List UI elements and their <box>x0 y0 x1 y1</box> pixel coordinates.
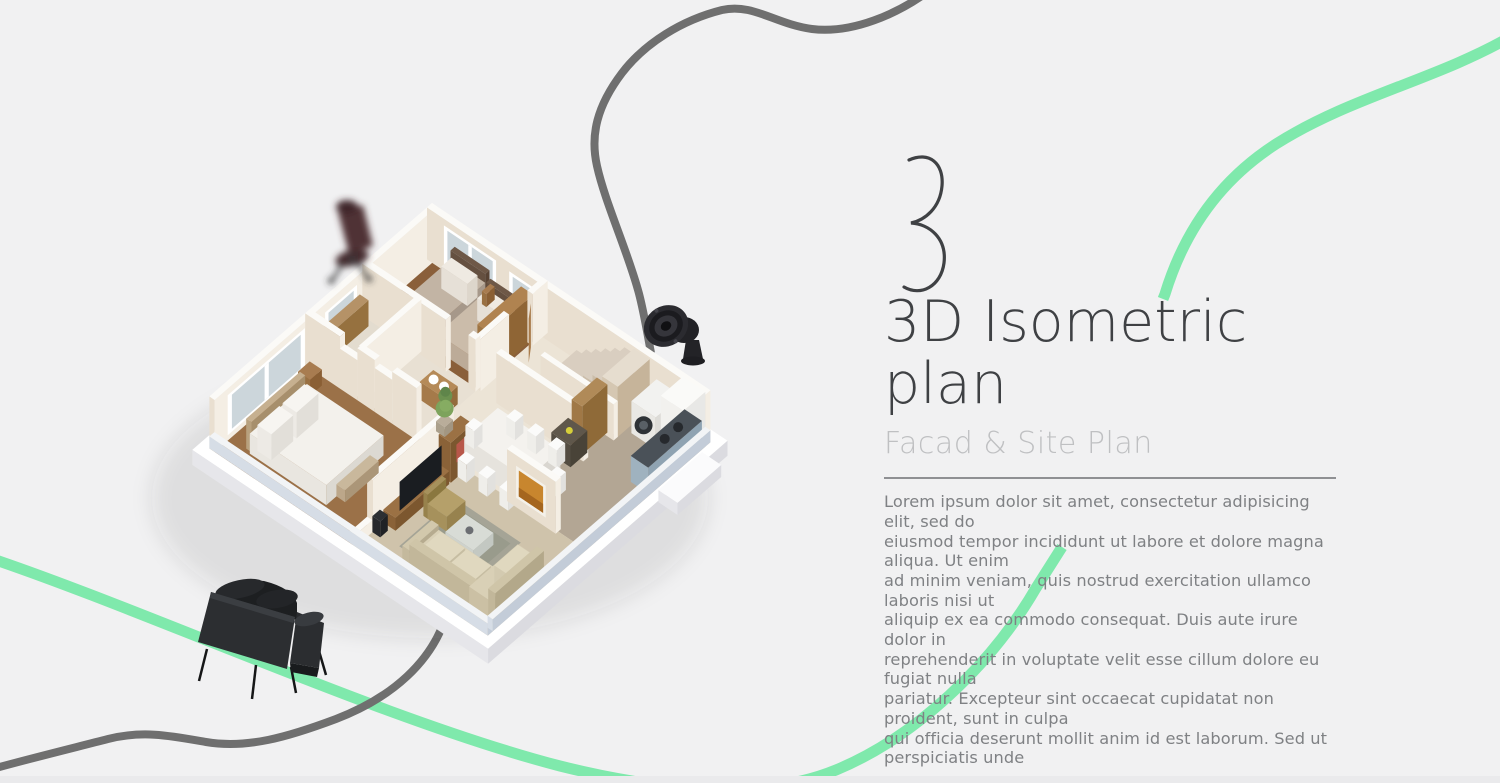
page-subtitle: Facad & Site Plan <box>884 426 1354 461</box>
text-column: 3D Isometric plan Facad & Site Plan Lore… <box>884 148 1354 768</box>
gray-curve-top <box>594 0 930 353</box>
body-paragraph: Lorem ipsum dolor sit amet, consectetur … <box>884 492 1344 768</box>
bottom-edge <box>0 776 1500 783</box>
page-title: 3D Isometric plan <box>884 292 1354 415</box>
section-number <box>896 148 958 298</box>
slide: 3D Isometric plan Facad & Site Plan Lore… <box>0 0 1500 783</box>
divider-line <box>884 477 1336 479</box>
